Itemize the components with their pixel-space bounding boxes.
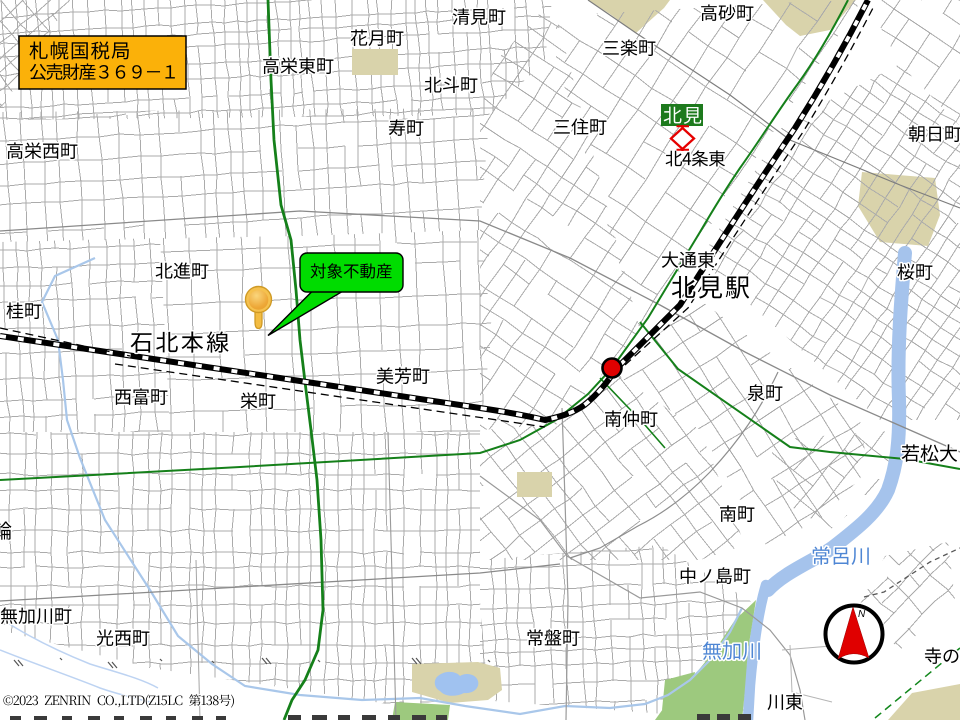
svg-text:N: N xyxy=(858,609,866,620)
